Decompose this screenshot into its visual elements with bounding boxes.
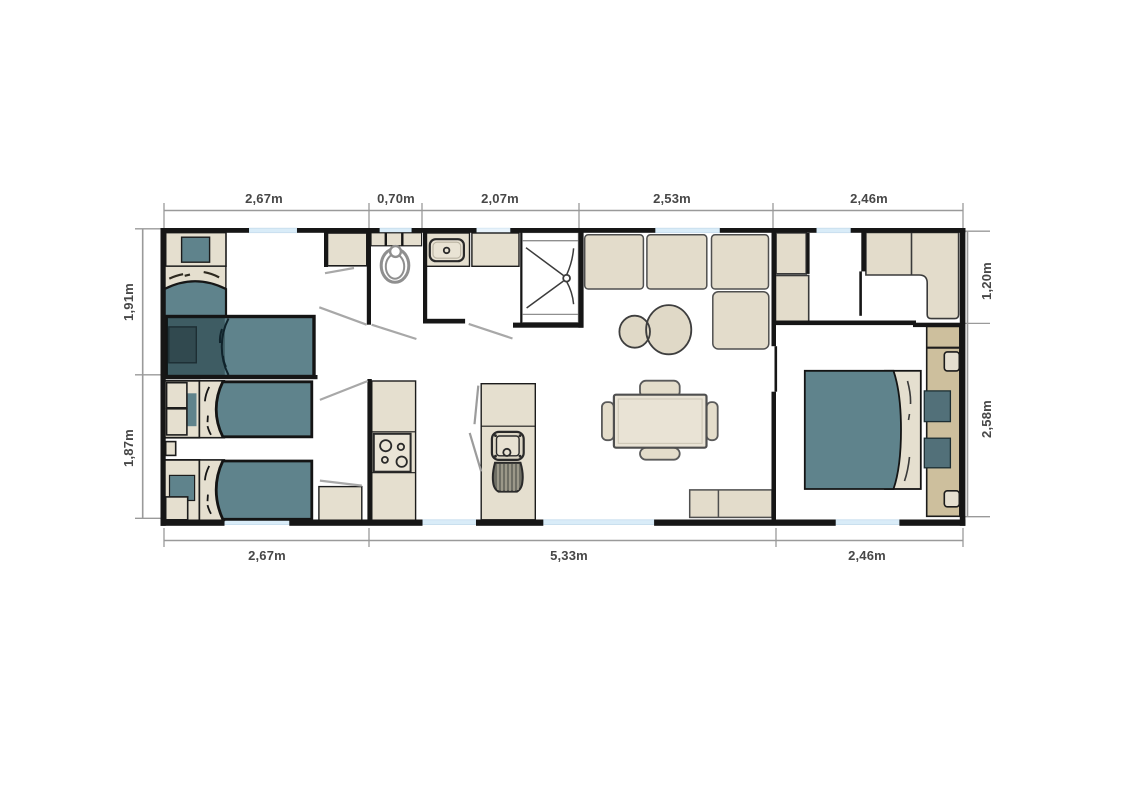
svg-text:5,33m: 5,33m: [550, 548, 588, 563]
svg-text:1,20m: 1,20m: [979, 262, 994, 300]
svg-text:2,67m: 2,67m: [248, 548, 286, 563]
svg-text:2,67m: 2,67m: [245, 191, 283, 206]
svg-text:2,46m: 2,46m: [850, 191, 888, 206]
svg-text:1,91m: 1,91m: [121, 283, 136, 321]
svg-text:2,58m: 2,58m: [979, 400, 994, 438]
svg-text:2,53m: 2,53m: [653, 191, 691, 206]
svg-text:0,70m: 0,70m: [377, 191, 415, 206]
svg-text:1,87m: 1,87m: [121, 429, 136, 467]
svg-text:2,46m: 2,46m: [848, 548, 886, 563]
svg-text:2,07m: 2,07m: [481, 191, 519, 206]
